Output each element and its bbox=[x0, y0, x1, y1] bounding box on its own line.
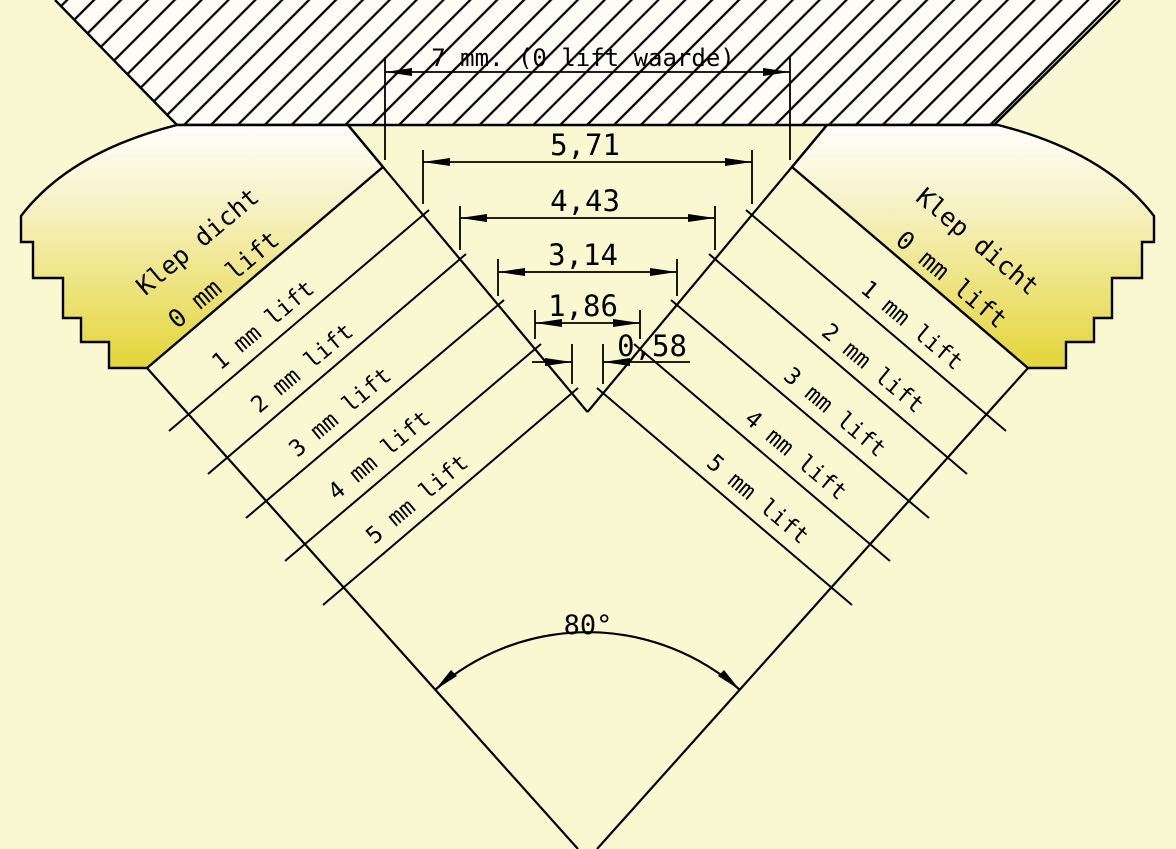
dim-label-186: 1,86 bbox=[548, 289, 618, 323]
dim-7mm-label: 7 mm. (0 lift waarde) bbox=[431, 44, 734, 72]
dim-label-314: 3,14 bbox=[548, 238, 618, 272]
dim-label-571: 5,71 bbox=[550, 128, 620, 162]
valve-lift-diagram: 1 mm lift 2 mm lift 3 mm lift 4 mm lift … bbox=[0, 0, 1176, 849]
dim-label-443: 4,43 bbox=[550, 184, 620, 218]
seat-angle-label: 80° bbox=[564, 610, 613, 641]
diagram-canvas: 1 mm lift 2 mm lift 3 mm lift 4 mm lift … bbox=[0, 0, 1176, 849]
dim-label-058: 0,58 bbox=[617, 329, 687, 363]
